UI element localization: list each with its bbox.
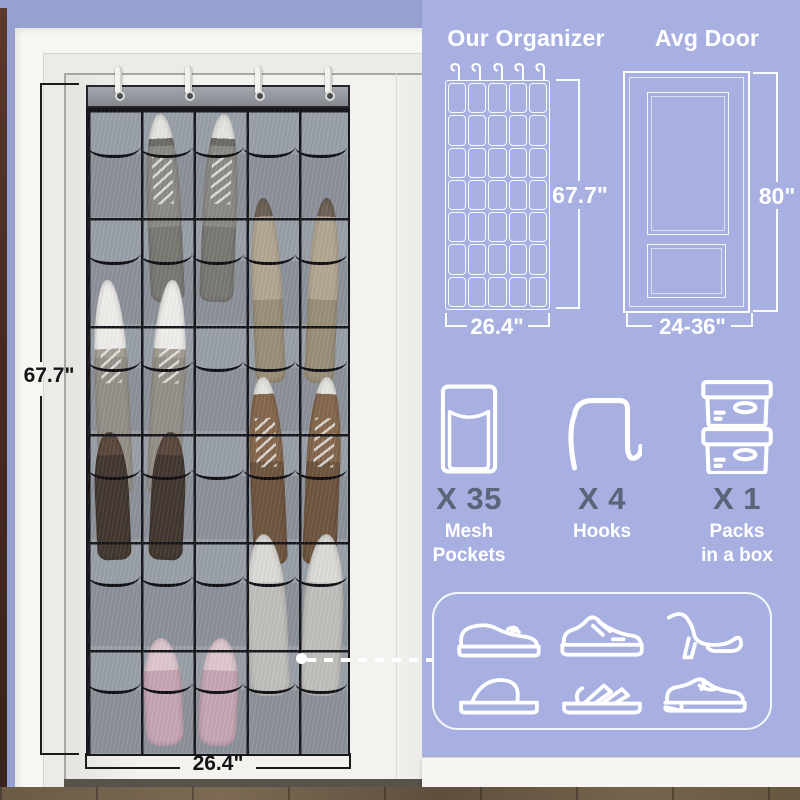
width-dimension-line-right <box>256 767 351 769</box>
sandal-icon <box>555 661 648 718</box>
baseboard <box>422 757 800 787</box>
diagram-pocket-cell <box>488 83 506 113</box>
over-door-hook-photo <box>325 66 332 93</box>
diagram-pocket-cell <box>468 212 486 242</box>
diagram-hook-icon <box>513 62 525 80</box>
sneaker-icon <box>555 604 648 661</box>
hook-count: X 4 <box>578 483 626 514</box>
door-height-tick-bottom <box>753 310 778 312</box>
shoe-types-box <box>432 592 772 730</box>
photo-width-label: 26.4" <box>178 752 258 776</box>
door-lower-panel <box>647 244 726 298</box>
diagram-pocket-cell <box>509 148 527 178</box>
mesh-pocket-front <box>88 583 140 646</box>
door-height-tick-top <box>753 72 778 74</box>
height-dimension-line-bottom <box>40 396 42 754</box>
door-slab-edge <box>396 73 397 781</box>
diagram-pocket-cell <box>509 212 527 242</box>
diagram-pocket-cell <box>468 277 486 307</box>
diagram-pocket-cell <box>529 83 547 113</box>
over-door-hook-icon <box>562 370 642 474</box>
mesh-pocket-front <box>192 583 244 646</box>
over-door-hook-photo <box>115 66 122 93</box>
diagram-pocket-cell <box>468 115 486 145</box>
diagram-pocket-cell <box>448 148 466 178</box>
shoe-laces <box>151 155 174 205</box>
height-dimension-tick-top <box>40 83 79 85</box>
diagram-pocket-cell <box>529 180 547 210</box>
door-diagram <box>623 71 750 313</box>
organizer-width-line-right <box>528 325 550 327</box>
door-height-label: 80" <box>744 183 800 210</box>
diagram-hook-icon <box>534 62 546 80</box>
storage-box-icon <box>695 370 779 474</box>
organizer-width-line-left <box>445 325 467 327</box>
organizer-height-line-bottom <box>578 209 580 309</box>
shoe-laces <box>209 155 232 205</box>
hook-label: Hooks <box>573 520 631 544</box>
organizer-width-tick-left <box>445 313 447 327</box>
diagram-pocket-cell <box>488 180 506 210</box>
high-heel-icon <box>659 604 752 661</box>
diagram-pocket-cell <box>529 212 547 242</box>
grommet <box>115 91 125 101</box>
width-dimension-tick-right <box>349 753 351 769</box>
box-count: X 1 <box>713 483 761 514</box>
shoe-laces <box>255 417 278 467</box>
diagram-hook-icon <box>449 62 461 80</box>
grommet <box>185 91 195 101</box>
diagram-pocket-cell <box>488 277 506 307</box>
door-photo: 67.7" 26.4" <box>0 0 422 800</box>
info-panel: Our Organizer Avg Door 67.7" 26.4" <box>422 0 800 757</box>
organizer-diagram <box>445 80 550 310</box>
diagram-pocket-cell <box>448 277 466 307</box>
photo-height-label: 67.7" <box>14 364 84 388</box>
diagram-pocket-cell <box>468 83 486 113</box>
diagram-pocket-cell <box>448 244 466 274</box>
diagram-pocket-cell <box>488 148 506 178</box>
diagram-pocket-cell <box>509 115 527 145</box>
shoe-laces <box>99 327 122 384</box>
organizer-height-tick-bottom <box>556 307 580 309</box>
diagram-pocket-cell <box>448 212 466 242</box>
over-door-hook-photo <box>255 66 262 93</box>
organizer-header-strip <box>86 85 350 108</box>
pocket-count: X 35 <box>436 483 502 514</box>
connector-dot <box>296 653 307 664</box>
door-height-line-top <box>776 72 778 182</box>
width-dimension-tick-left <box>85 753 87 769</box>
diagram-pocket-cell <box>509 244 527 274</box>
door-width-tick-left <box>626 313 628 327</box>
organizer-title: Our Organizer <box>426 25 626 52</box>
pocket-label-line1: Mesh <box>445 520 494 544</box>
wood-floor <box>0 787 800 800</box>
mesh-pocket-front <box>243 690 295 753</box>
door-width-label: 24-36" <box>645 314 740 340</box>
diagram-pocket-cell <box>529 244 547 274</box>
organizer-height-line-top <box>578 79 580 181</box>
mesh-pocket-front <box>140 583 192 646</box>
diagram-pocket-cell <box>448 115 466 145</box>
diagram-pocket-cell <box>448 83 466 113</box>
diagram-pocket-cell <box>488 212 506 242</box>
diagram-pocket-cell <box>448 180 466 210</box>
grommet <box>325 91 335 101</box>
content-hooks: X 4 Hooks <box>556 370 648 544</box>
shoe-laces <box>313 417 336 467</box>
organizer-width-label: 26.4" <box>467 314 527 340</box>
diagram-hook-icon <box>492 62 504 80</box>
diagram-pocket-cell <box>488 115 506 145</box>
door-upper-panel <box>647 92 729 235</box>
diagram-pocket-cell <box>529 277 547 307</box>
mesh-pocket-front <box>192 476 244 539</box>
connector-dashed-line <box>307 658 432 662</box>
casual-shoe-icon <box>452 604 545 661</box>
mesh-pocket-front <box>295 690 347 753</box>
diagram-pocket-cell <box>509 180 527 210</box>
organizer-diagram-hooks <box>445 62 550 80</box>
mesh-pocket-icon <box>440 370 498 474</box>
organizer-width-tick-right <box>548 313 550 327</box>
mesh-pocket-front <box>88 690 140 753</box>
shoe-laces <box>158 327 181 384</box>
diagram-pocket-cell <box>509 83 527 113</box>
diagram-pocket-cell <box>468 148 486 178</box>
door-title: Avg Door <box>627 25 787 52</box>
organizer-height-label: 67.7" <box>548 182 612 209</box>
pocket-label-line2: Pockets <box>433 544 506 568</box>
loafer-icon <box>659 661 752 718</box>
shoe-organizer-photo <box>86 85 350 756</box>
diagram-hook-icon <box>470 62 482 80</box>
diagram-pocket-cell <box>468 180 486 210</box>
adjacent-furniture-edge <box>0 8 7 787</box>
height-dimension-tick-bottom <box>40 753 79 755</box>
product-infographic: 67.7" 26.4" Our Organizer Avg Door 67.7"… <box>0 0 800 800</box>
diagram-pocket-cell <box>529 115 547 145</box>
door-width-tick-right <box>751 313 753 327</box>
box-label-line2: in a box <box>701 544 773 568</box>
diagram-pocket-cell <box>488 244 506 274</box>
diagram-pocket-cell <box>509 277 527 307</box>
organizer-height-tick-top <box>556 79 580 81</box>
width-dimension-line-left <box>85 767 180 769</box>
mesh-pocket-front <box>192 368 244 431</box>
grommet <box>255 91 265 101</box>
diagram-pocket-cell <box>468 244 486 274</box>
slide-slipper-icon <box>452 661 545 718</box>
content-mesh-pockets: X 35 Mesh Pockets <box>423 370 515 568</box>
mesh-pocket-front <box>88 154 140 217</box>
height-dimension-line-top <box>40 84 42 362</box>
box-label-line1: Packs <box>710 520 765 544</box>
content-box: X 1 Packs in a box <box>691 370 783 568</box>
diagram-pocket-cell <box>529 148 547 178</box>
door-height-line-bottom <box>776 209 778 312</box>
over-door-hook-photo <box>185 66 192 93</box>
